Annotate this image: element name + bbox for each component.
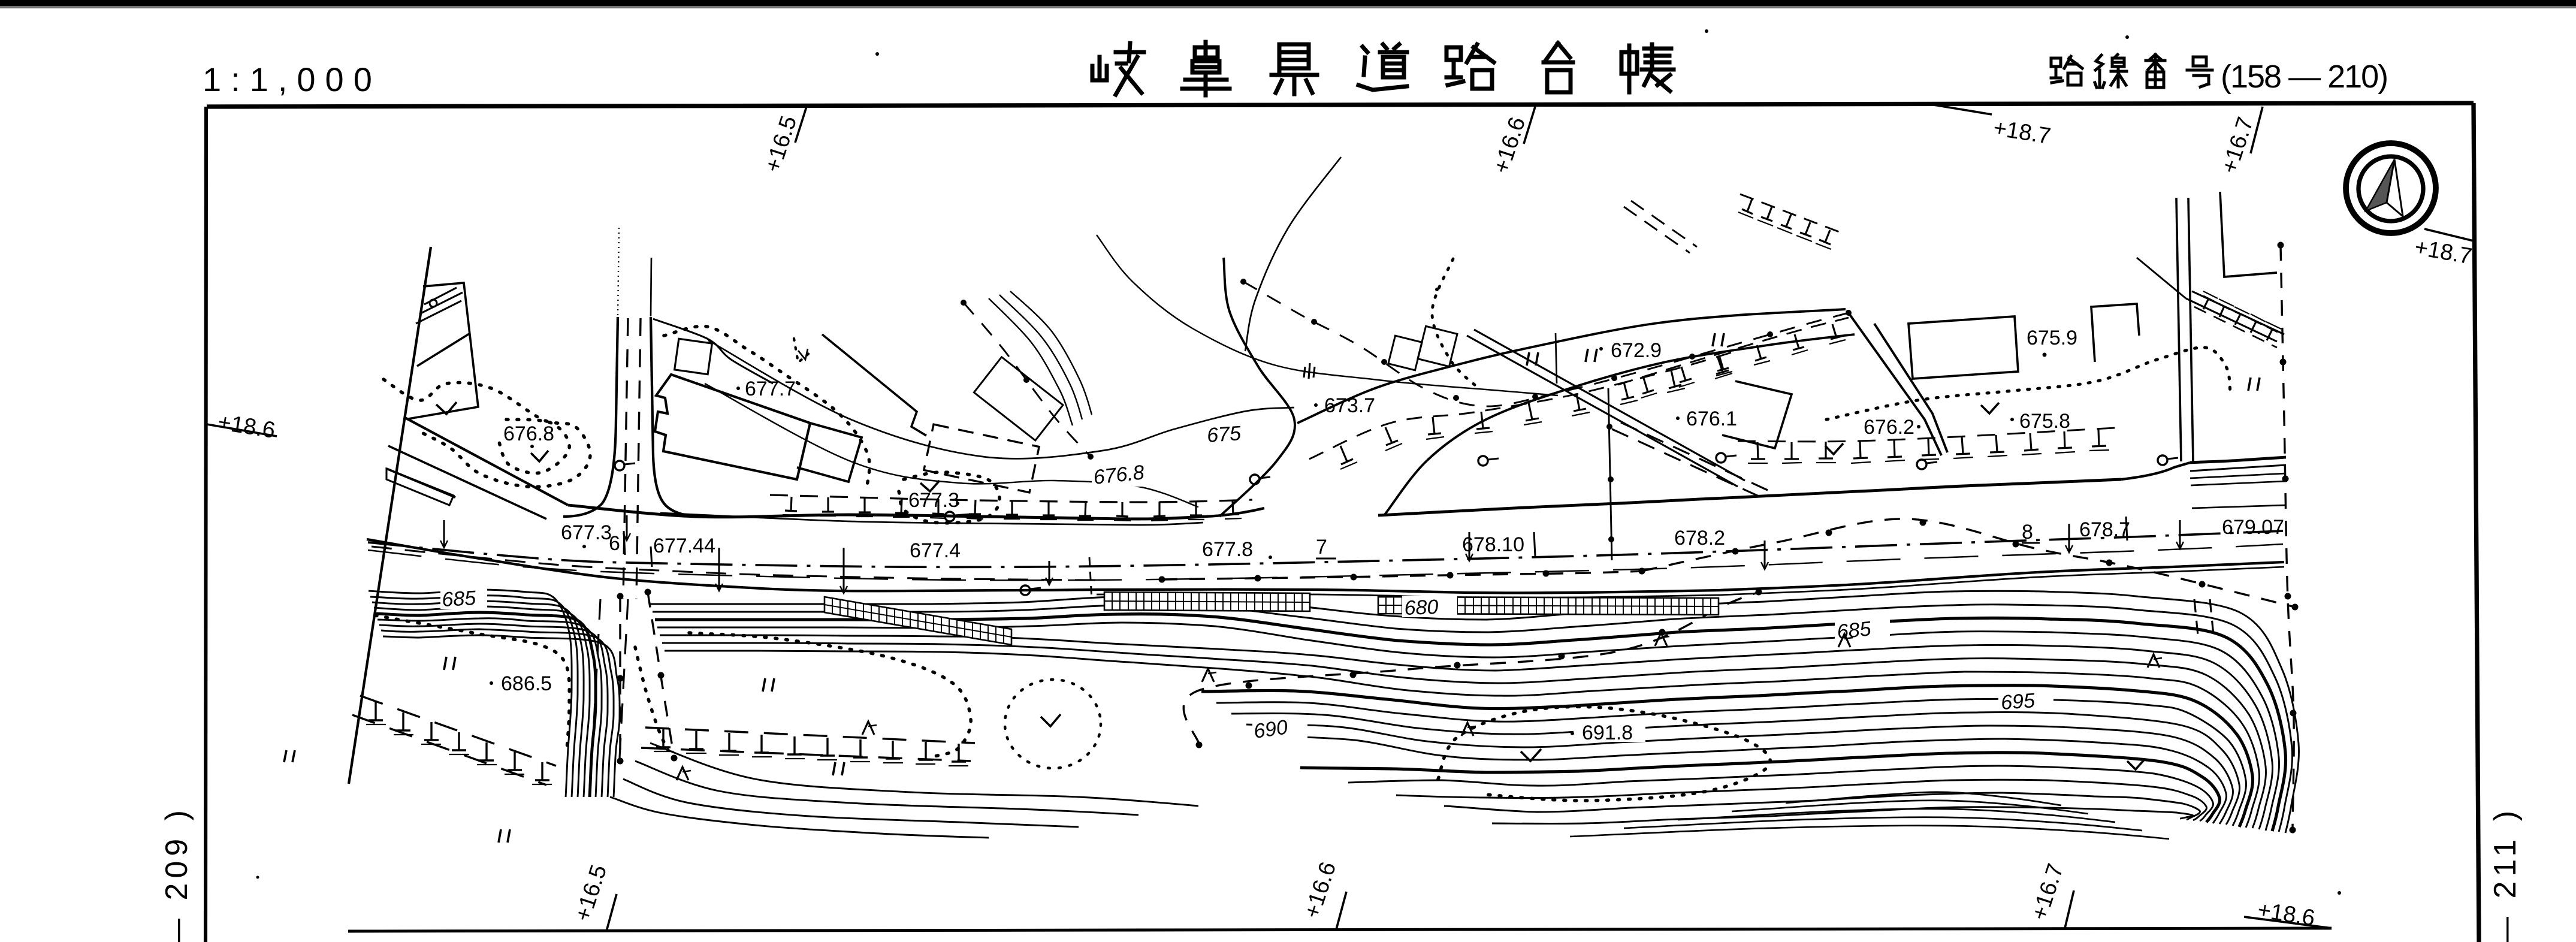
svg-text:675.9: 675.9 xyxy=(2027,327,2077,349)
svg-text:675: 675 xyxy=(1206,422,1242,447)
svg-text:676.1: 676.1 xyxy=(1686,407,1737,430)
svg-text:679.07: 679.07 xyxy=(2222,516,2284,539)
svg-text:676.8: 676.8 xyxy=(503,422,554,445)
svg-text:+18.6: +18.6 xyxy=(216,409,277,443)
svg-text:1:1,000: 1:1,000 xyxy=(203,61,382,98)
svg-text:677.4: 677.4 xyxy=(910,539,961,562)
svg-text:— 209 ): — 209 ) xyxy=(159,805,194,942)
svg-text:+16.5: +16.5 xyxy=(570,862,612,924)
svg-text:673.7: 673.7 xyxy=(1324,394,1375,417)
svg-text:690: 690 xyxy=(1252,715,1289,743)
svg-text:675.8: 675.8 xyxy=(2019,410,2070,433)
svg-text:7: 7 xyxy=(1316,536,1327,558)
svg-text:678.10: 678.10 xyxy=(1462,533,1524,556)
svg-text:+16.6: +16.6 xyxy=(1489,114,1531,176)
svg-text:8: 8 xyxy=(2022,521,2033,544)
svg-text:677.44: 677.44 xyxy=(653,535,715,557)
svg-text:677.8: 677.8 xyxy=(1202,538,1253,561)
svg-text:+18.7: +18.7 xyxy=(1992,115,2053,149)
svg-text:672.9: 672.9 xyxy=(1611,339,1662,362)
svg-text:— 211 ): — 211 ) xyxy=(2488,806,2523,942)
svg-text:+16.5: +16.5 xyxy=(760,113,802,175)
svg-text:+16.7: +16.7 xyxy=(2027,861,2069,923)
svg-text:691.8: 691.8 xyxy=(1582,721,1633,744)
svg-text:678.7: 678.7 xyxy=(2079,518,2130,541)
svg-text:(158 — 210): (158 — 210) xyxy=(2221,59,2387,95)
svg-text:677.7: 677.7 xyxy=(745,378,796,400)
svg-text:+18.6: +18.6 xyxy=(2256,897,2317,931)
svg-text:676.2: 676.2 xyxy=(1864,416,1914,439)
svg-text:695: 695 xyxy=(2000,689,2036,714)
svg-text:685: 685 xyxy=(441,587,476,611)
svg-text:678.2: 678.2 xyxy=(1674,527,1725,549)
svg-text:680: 680 xyxy=(1404,596,1439,620)
svg-text:6: 6 xyxy=(609,532,620,555)
svg-text:677.3: 677.3 xyxy=(561,521,612,544)
svg-text:+16.6: +16.6 xyxy=(1300,859,1342,921)
svg-text:686.5: 686.5 xyxy=(501,672,552,695)
